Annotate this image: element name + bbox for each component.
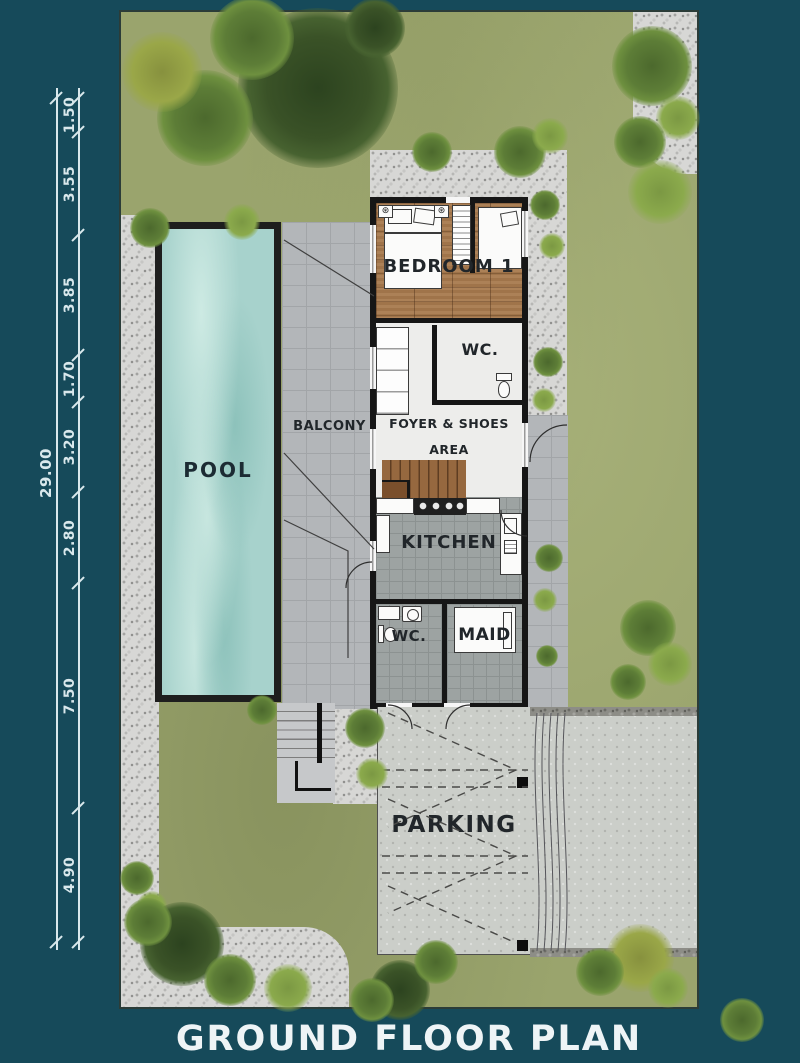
- shoe-cabinet-icon: [376, 327, 409, 415]
- entry-porch: [527, 415, 568, 707]
- wall-kitchen-bottom: [376, 599, 522, 604]
- counter-icon: [376, 498, 414, 514]
- tree-icon: [720, 998, 764, 1042]
- dimension-segment-label: 3.55: [62, 166, 78, 203]
- maid-label: MAID: [447, 626, 522, 645]
- toilet-bowl-icon-upper: [498, 381, 510, 398]
- wall-bedroom-foyer: [376, 318, 522, 323]
- wall-wc-maid: [442, 604, 447, 703]
- floor-plan-canvas: POOL BALCONY: [0, 0, 800, 1063]
- bedroom-label: BEDROOM 1: [370, 257, 528, 277]
- ac-unit-icon: ⊛: [434, 205, 449, 218]
- site-lawn: POOL BALCONY: [121, 12, 697, 1007]
- plan-title: GROUND FLOOR PLAN: [121, 1019, 697, 1059]
- dimension-segment-label: 4.90: [62, 857, 78, 894]
- wall-wc-upper-side: [432, 325, 437, 405]
- pool: POOL: [155, 222, 281, 702]
- driveway-gravel-edge-bottom: [530, 948, 697, 957]
- washer-drum-icon: [407, 609, 419, 621]
- dimension-overall-label: 29.00: [37, 448, 55, 498]
- door-entry-right: [522, 423, 528, 467]
- balcony: BALCONY: [282, 222, 377, 709]
- ac-unit-icon: ⊛: [378, 205, 393, 218]
- dimension-line-overall: [56, 88, 58, 950]
- balcony-label: BALCONY: [282, 420, 377, 434]
- blanket-fold-line: [385, 232, 441, 234]
- building: ⊛ ⊛ BEDROOM 1 WC. FOYER & SHOES AREA: [370, 197, 528, 709]
- dimension-segment-label: 1.50: [62, 97, 78, 134]
- dimension-segment-label: 3.20: [62, 429, 78, 466]
- parking-area: PARKING: [377, 707, 530, 955]
- parking-label: PARKING: [378, 813, 530, 838]
- driveway-gravel-edge-top: [530, 707, 697, 716]
- dimension-segment-label: 1.70: [62, 361, 78, 398]
- pool-label: POOL: [162, 459, 274, 481]
- driveway: [530, 707, 697, 957]
- toilet-icon-upper: [496, 373, 512, 381]
- gravel-top-right-path: [633, 12, 697, 174]
- gravel-left-strip: [121, 215, 159, 1007]
- dimension-segment-label: 2.80: [62, 520, 78, 557]
- stair-landing-outline: [295, 761, 331, 791]
- wc-upper-label: WC.: [440, 341, 520, 359]
- pool-water: POOL: [162, 229, 274, 695]
- stair-treads: [277, 703, 335, 765]
- counter-icon: [466, 498, 500, 514]
- gravel-stairs-patch: [333, 700, 377, 804]
- sink-icon: [504, 518, 517, 534]
- washer-icon: [402, 606, 422, 622]
- foyer-label-line1: FOYER & SHOES: [380, 417, 518, 431]
- wall-wc-upper-bottom: [432, 400, 522, 405]
- kitchen-label: KITCHEN: [376, 533, 522, 553]
- wash-basin-icon: [378, 606, 400, 620]
- gravel-above-building: [370, 150, 567, 197]
- window-bedroom-right: [522, 211, 528, 257]
- dimension-segment-label: 7.50: [62, 678, 78, 715]
- gravel-bottom-left: [121, 927, 349, 1007]
- window-foyer-left-2: [370, 429, 376, 469]
- foyer-label-line2: AREA: [380, 443, 518, 457]
- gate-post: [517, 777, 528, 788]
- dimension-segment-label: 3.85: [62, 277, 78, 314]
- stair-railing: [317, 703, 322, 763]
- exterior-stairs: [277, 703, 335, 803]
- gate-post: [517, 940, 528, 951]
- wc-lower-label: WC.: [376, 628, 442, 645]
- dimension-line-segments: [78, 88, 80, 950]
- door-bedroom-hall: [446, 197, 470, 203]
- pillow-icon: [500, 211, 519, 228]
- stove-icon: [414, 498, 466, 515]
- pillow-icon: [413, 208, 436, 226]
